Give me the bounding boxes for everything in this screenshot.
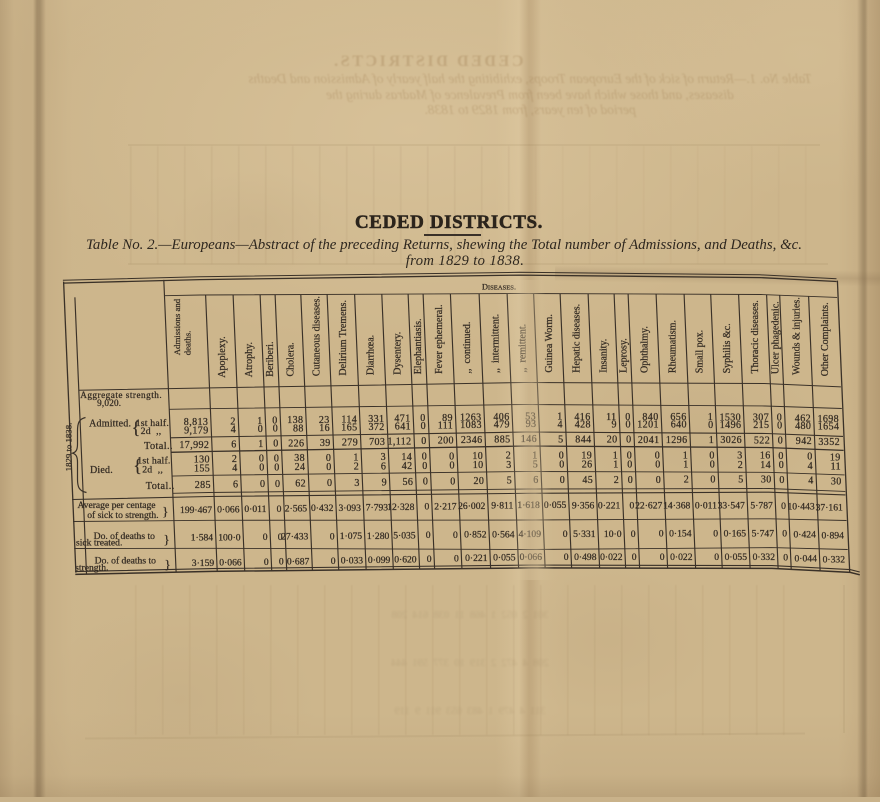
svg-text:1201: 1201 — [637, 420, 659, 431]
svg-text:26·002: 26·002 — [458, 501, 485, 512]
svg-text:0: 0 — [625, 420, 630, 431]
svg-text:0: 0 — [708, 420, 713, 431]
svg-text:1·280: 1·280 — [367, 531, 390, 542]
svg-text:Cutaneous diseases.: Cutaneous diseases. — [311, 296, 322, 376]
svg-text:0: 0 — [564, 552, 569, 563]
svg-text:5: 5 — [558, 434, 563, 445]
svg-text:1: 1 — [683, 460, 688, 471]
svg-text:7·793: 7·793 — [366, 502, 389, 513]
svg-text:Insanity.: Insanity. — [598, 339, 609, 373]
svg-text:Elephantiasis.: Elephantiasis. — [413, 318, 424, 374]
svg-text:1296: 1296 — [666, 435, 688, 446]
svg-text:0: 0 — [779, 475, 784, 486]
svg-text:0: 0 — [453, 530, 458, 541]
svg-text:1: 1 — [709, 435, 714, 446]
svg-text:0·852: 0·852 — [464, 530, 487, 541]
svg-text:26: 26 — [582, 460, 593, 471]
svg-text:5·331: 5·331 — [573, 529, 596, 540]
svg-text:3026: 3026 — [720, 435, 742, 446]
svg-text:641: 641 — [395, 421, 411, 432]
svg-text:1·075: 1·075 — [340, 531, 363, 542]
svg-text:0·044: 0·044 — [795, 553, 818, 564]
svg-text:Hepatic diseases.: Hepatic diseases. — [571, 304, 582, 373]
svg-text:sick treated.: sick treated. — [76, 538, 122, 549]
svg-text:0: 0 — [560, 475, 565, 486]
svg-text:0: 0 — [714, 552, 719, 563]
svg-text:9·356: 9·356 — [572, 500, 595, 511]
svg-text:0: 0 — [326, 462, 331, 473]
svg-text:Leprosy.: Leprosy. — [618, 338, 629, 373]
svg-text:0: 0 — [263, 532, 268, 543]
svg-text:844: 844 — [575, 434, 591, 445]
svg-text:0: 0 — [327, 478, 332, 489]
svg-text:Fever ephemeral.: Fever ephemeral. — [434, 304, 445, 373]
svg-text:0: 0 — [423, 477, 428, 488]
svg-text:5·035: 5·035 — [393, 531, 416, 542]
svg-text:16: 16 — [319, 423, 330, 434]
svg-text:0·498: 0·498 — [574, 552, 597, 563]
svg-text:4: 4 — [232, 463, 237, 474]
svg-text:6: 6 — [233, 480, 238, 491]
svg-text:}: } — [162, 504, 168, 519]
svg-text:Delirium Tremens.: Delirium Tremens. — [338, 300, 349, 376]
svg-text:0: 0 — [627, 460, 632, 471]
svg-text:3·093: 3·093 — [339, 503, 362, 514]
svg-text:155: 155 — [194, 464, 210, 475]
svg-text:0: 0 — [659, 529, 664, 540]
svg-text:14·368: 14·368 — [663, 500, 690, 511]
svg-text:0·424: 0·424 — [794, 529, 817, 540]
svg-text:3: 3 — [354, 478, 359, 489]
svg-text:0·099: 0·099 — [368, 555, 391, 566]
svg-text:0: 0 — [421, 436, 426, 447]
svg-text:0: 0 — [450, 476, 455, 487]
svg-text:10·0: 10·0 — [604, 529, 622, 540]
svg-text:0·055: 0·055 — [725, 552, 748, 563]
svg-text:2d ,,: 2d ,, — [142, 464, 163, 475]
svg-text:,, continued.: ,, continued. — [462, 322, 473, 374]
svg-text:0: 0 — [273, 424, 278, 435]
svg-text:0: 0 — [279, 557, 284, 568]
svg-text:0·221: 0·221 — [465, 553, 488, 564]
svg-text:0·066: 0·066 — [219, 558, 242, 569]
svg-text:226: 226 — [288, 438, 304, 449]
svg-text:100·0: 100·0 — [218, 532, 241, 543]
svg-text:Dysentery.: Dysentery. — [392, 332, 403, 375]
svg-text:199·467: 199·467 — [180, 505, 212, 516]
svg-text:0: 0 — [660, 552, 665, 563]
svg-text:Total..: Total.. — [144, 441, 173, 452]
svg-text:0·165: 0·165 — [724, 528, 747, 539]
svg-text:3352: 3352 — [818, 437, 840, 448]
svg-text:,, intermittent.: ,, intermittent. — [490, 314, 501, 373]
svg-text:Beriberi.: Beriberi. — [265, 342, 276, 377]
svg-text:2·565: 2·565 — [285, 504, 308, 515]
svg-text:Rheumatism.: Rheumatism. — [667, 320, 678, 373]
svg-text:Atrophy.: Atrophy. — [244, 342, 255, 377]
svg-text:1654: 1654 — [818, 422, 840, 433]
svg-text:9,179: 9,179 — [184, 425, 209, 436]
svg-text:1: 1 — [613, 460, 618, 471]
svg-text:279: 279 — [342, 437, 358, 448]
svg-text:27·433: 27·433 — [281, 532, 308, 543]
svg-text:Admissions and: Admissions and — [172, 298, 182, 355]
svg-text:4: 4 — [557, 419, 562, 430]
svg-text:12·328: 12·328 — [387, 502, 414, 513]
svg-text:2041: 2041 — [638, 435, 660, 446]
svg-text:1829 to 1838.: 1829 to 1838. — [64, 423, 74, 472]
svg-text:0·620: 0·620 — [394, 554, 417, 565]
svg-text:0: 0 — [778, 436, 783, 447]
svg-text:Wounds & injuries.: Wounds & injuries. — [791, 297, 802, 375]
svg-text:2: 2 — [684, 475, 689, 486]
svg-text:10·443: 10·443 — [788, 502, 815, 513]
svg-text:165: 165 — [341, 422, 357, 433]
svg-text:}: } — [164, 532, 170, 547]
svg-text:2·217: 2·217 — [434, 501, 457, 512]
svg-text:Other Complaints.: Other Complaints. — [820, 302, 831, 376]
svg-text:0: 0 — [628, 475, 633, 486]
svg-text:20: 20 — [607, 435, 618, 446]
svg-text:0: 0 — [259, 463, 264, 474]
svg-text:0·066: 0·066 — [217, 505, 240, 516]
svg-text:2: 2 — [354, 462, 359, 473]
svg-text:37·161: 37·161 — [816, 502, 843, 513]
svg-text:Syphilis &c.: Syphilis &c. — [722, 323, 733, 373]
svg-text:0: 0 — [421, 421, 426, 432]
svg-text:1·584: 1·584 — [191, 533, 214, 544]
svg-text:4: 4 — [231, 425, 236, 436]
svg-text:0: 0 — [777, 420, 782, 431]
svg-text:522: 522 — [754, 435, 770, 446]
svg-text:4: 4 — [808, 461, 813, 472]
svg-text:0: 0 — [273, 439, 278, 450]
svg-text:0: 0 — [422, 461, 427, 472]
svg-text:0: 0 — [559, 460, 564, 471]
svg-text:5: 5 — [738, 475, 743, 486]
svg-text:39: 39 — [320, 438, 331, 449]
svg-text:deaths.: deaths. — [183, 331, 193, 356]
svg-text:0: 0 — [631, 529, 636, 540]
svg-text:480: 480 — [795, 421, 811, 432]
svg-text:0: 0 — [260, 479, 265, 490]
svg-text:0: 0 — [426, 530, 431, 541]
svg-text:Apoplexy.: Apoplexy. — [217, 336, 228, 377]
svg-text:45: 45 — [582, 475, 593, 486]
svg-text:0: 0 — [783, 553, 788, 564]
svg-text:42: 42 — [402, 461, 413, 472]
svg-text:24: 24 — [295, 462, 306, 473]
svg-text:428: 428 — [575, 419, 591, 430]
svg-text:62: 62 — [295, 479, 306, 490]
svg-text:0: 0 — [563, 529, 568, 540]
svg-text:6: 6 — [231, 440, 236, 451]
svg-text:88: 88 — [293, 423, 304, 434]
svg-text:Cholera.: Cholera. — [285, 342, 296, 376]
svg-text:strength.: strength. — [75, 563, 108, 574]
svg-text:0: 0 — [454, 554, 459, 565]
svg-text:0: 0 — [779, 460, 784, 471]
svg-text:0: 0 — [632, 552, 637, 563]
svg-text:0: 0 — [713, 529, 718, 540]
svg-text:0: 0 — [330, 531, 335, 542]
svg-text:0: 0 — [781, 501, 786, 512]
svg-text:Ulcer phagedenic.: Ulcer phagedenic. — [770, 301, 781, 374]
svg-text:0: 0 — [656, 475, 661, 486]
svg-text:22·627: 22·627 — [635, 500, 662, 511]
svg-text:9: 9 — [611, 420, 616, 431]
svg-text:1,112: 1,112 — [387, 436, 411, 447]
svg-text:0: 0 — [275, 479, 280, 490]
svg-text:30: 30 — [761, 474, 772, 485]
svg-text:9,020.: 9,020. — [97, 398, 121, 408]
svg-text:111: 111 — [438, 421, 453, 432]
svg-text:0: 0 — [427, 554, 432, 565]
svg-text:0·154: 0·154 — [669, 529, 692, 540]
svg-text:10: 10 — [473, 460, 484, 471]
svg-text:0: 0 — [710, 475, 715, 486]
svg-text:0: 0 — [782, 529, 787, 540]
svg-text:0: 0 — [626, 435, 631, 446]
svg-text:14: 14 — [760, 460, 771, 471]
svg-text:0: 0 — [630, 500, 635, 511]
svg-text:0·011: 0·011 — [244, 504, 266, 515]
svg-text:0·432: 0·432 — [311, 503, 334, 514]
svg-text:Total..: Total.. — [146, 481, 175, 492]
svg-text:640: 640 — [671, 420, 687, 431]
svg-text:215: 215 — [753, 420, 769, 431]
svg-text:0·221: 0·221 — [598, 500, 621, 511]
svg-text:5·787: 5·787 — [750, 501, 773, 512]
svg-text:of sick to strength.: of sick to strength. — [87, 510, 158, 521]
svg-text:Diarrhœa.: Diarrhœa. — [366, 335, 377, 375]
svg-text:11: 11 — [831, 462, 841, 473]
svg-text:33·547: 33·547 — [718, 501, 745, 512]
svg-text:0·022: 0·022 — [670, 552, 693, 563]
svg-text:0: 0 — [710, 460, 715, 471]
svg-text:2: 2 — [738, 460, 743, 471]
svg-text:0: 0 — [655, 460, 660, 471]
svg-text:200: 200 — [438, 436, 454, 447]
svg-text:2: 2 — [614, 475, 619, 486]
svg-text:0: 0 — [274, 462, 279, 473]
svg-text:2d ,,: 2d ,, — [141, 426, 162, 437]
svg-text:9: 9 — [382, 477, 387, 488]
svg-text:Died.: Died. — [90, 465, 113, 476]
svg-text:0: 0 — [264, 557, 269, 568]
svg-text:0: 0 — [331, 556, 336, 567]
svg-text:372: 372 — [368, 422, 384, 433]
svg-text:Admitted.: Admitted. — [89, 419, 131, 430]
svg-text:0: 0 — [277, 504, 282, 515]
svg-text:56: 56 — [402, 477, 413, 488]
svg-text:0·033: 0·033 — [341, 555, 364, 566]
svg-text:1: 1 — [258, 439, 263, 450]
svg-text:0: 0 — [425, 502, 430, 513]
svg-text:703: 703 — [369, 437, 385, 448]
svg-text:6: 6 — [381, 461, 386, 472]
svg-text:Thoracic diseases.: Thoracic diseases. — [750, 300, 761, 373]
svg-text:0·332: 0·332 — [753, 552, 776, 563]
svg-text:4: 4 — [808, 476, 813, 487]
svg-text:0·011: 0·011 — [695, 500, 717, 511]
svg-text:2346: 2346 — [461, 435, 483, 446]
svg-text:Ophthalmy.: Ophthalmy. — [639, 326, 650, 373]
svg-text:1496: 1496 — [720, 420, 742, 431]
svg-text:285: 285 — [195, 480, 211, 491]
svg-text:17,992: 17,992 — [179, 440, 209, 451]
svg-text:0·687: 0·687 — [287, 556, 310, 567]
svg-text:0: 0 — [449, 461, 454, 472]
svg-text:0·022: 0·022 — [600, 552, 623, 563]
svg-text:0: 0 — [258, 424, 263, 435]
svg-text:1083: 1083 — [460, 420, 482, 431]
svg-text:}: } — [165, 557, 171, 572]
svg-text:30: 30 — [831, 477, 842, 488]
svg-text:0·332: 0·332 — [823, 554, 846, 565]
svg-text:Small pox.: Small pox. — [695, 330, 706, 373]
svg-text:3·159: 3·159 — [192, 558, 215, 569]
svg-text:942: 942 — [796, 436, 812, 447]
svg-text:20: 20 — [473, 476, 484, 487]
svg-text:5·747: 5·747 — [752, 528, 775, 539]
svg-text:0·894: 0·894 — [822, 530, 845, 541]
